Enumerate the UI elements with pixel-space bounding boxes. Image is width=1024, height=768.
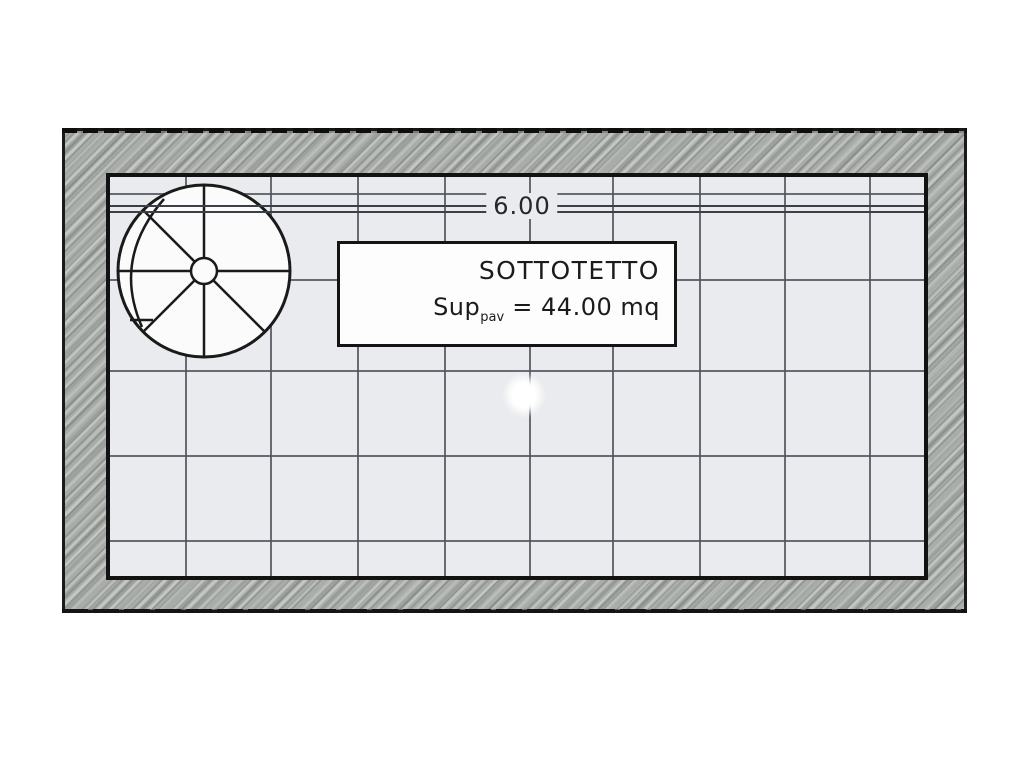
area-value: = 44.00 mq: [504, 293, 660, 321]
tile-grid-line-vertical: [869, 177, 871, 576]
room-label-box: SOTTOTETTO Suppav = 44.00 mq: [337, 241, 677, 347]
attic-floorplan-walls: 6.00 SOTTOTETTO Suppav = 44.00 mq: [62, 128, 967, 613]
area-prefix: Sup: [433, 293, 480, 321]
area-subscript: pav: [480, 310, 504, 325]
tile-grid-line-vertical: [357, 177, 359, 576]
scan-smudge: [502, 372, 546, 418]
attic-room: 6.00 SOTTOTETTO Suppav = 44.00 mq: [106, 173, 928, 580]
tile-grid-line-vertical: [784, 177, 786, 576]
tile-grid-line-vertical: [699, 177, 701, 576]
room-name: SOTTOTETTO: [340, 253, 660, 289]
spiral-stair-icon: [110, 177, 310, 377]
tile-grid-line-vertical: [444, 177, 446, 576]
tile-grid-line-vertical: [612, 177, 614, 576]
room-area: Suppav = 44.00 mq: [340, 289, 660, 336]
tile-grid-line-horizontal: [110, 455, 924, 457]
dimension-label: 6.00: [486, 193, 557, 219]
tile-grid-line-horizontal: [110, 540, 924, 542]
floorplan-page: 6.00 SOTTOTETTO Suppav = 44.00 mq: [0, 0, 1024, 768]
